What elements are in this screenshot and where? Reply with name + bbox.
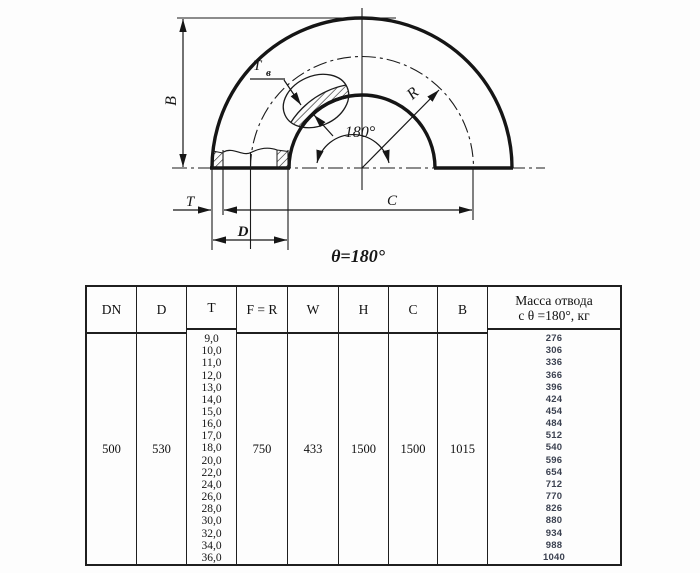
t-value: 10,0 bbox=[201, 345, 221, 357]
t-value: 13,0 bbox=[201, 382, 221, 394]
t-values-list: 9,010,011,012,013,014,015,016,017,018,02… bbox=[187, 330, 236, 564]
header-b: B bbox=[438, 287, 487, 334]
mass-value: 484 bbox=[546, 418, 562, 430]
label-b: B bbox=[163, 96, 180, 106]
wall-section-hatch-left bbox=[213, 151, 223, 167]
mass-value: 596 bbox=[546, 455, 562, 467]
mass-value: 454 bbox=[546, 406, 562, 418]
t-value: 15,0 bbox=[201, 406, 221, 418]
header-fr: F = R bbox=[237, 287, 287, 334]
value-b: 1015 bbox=[438, 334, 487, 564]
column-t: T 9,010,011,012,013,014,015,016,017,018,… bbox=[187, 287, 237, 564]
mass-value: 712 bbox=[546, 479, 562, 491]
header-h: H bbox=[339, 287, 388, 334]
mass-value: 540 bbox=[546, 442, 562, 454]
label-t: T bbox=[186, 194, 196, 210]
header-mass: Масса отвода с θ =180°, кг bbox=[488, 287, 620, 330]
dimension-table: DN 500 D 530 T 9,010,011,012,013,014,015… bbox=[85, 285, 622, 566]
column-fr: F = R 750 bbox=[237, 287, 288, 564]
label-r: R bbox=[403, 84, 423, 104]
header-c: C bbox=[389, 287, 437, 334]
value-d: 530 bbox=[137, 334, 186, 564]
mass-value: 366 bbox=[546, 370, 562, 382]
theta-caption: θ=180° bbox=[331, 246, 386, 266]
t-value: 30,0 bbox=[201, 515, 221, 527]
label-tb-subscript: в bbox=[266, 67, 271, 79]
header-dn: DN bbox=[87, 287, 136, 334]
column-w: W 433 bbox=[288, 287, 339, 564]
t-value: 17,0 bbox=[201, 430, 221, 442]
t-value: 24,0 bbox=[201, 479, 221, 491]
mass-value: 1040 bbox=[543, 552, 565, 564]
column-c: C 1500 bbox=[389, 287, 438, 564]
mass-value: 396 bbox=[546, 382, 562, 394]
mass-value: 336 bbox=[546, 357, 562, 369]
t-value: 14,0 bbox=[201, 394, 221, 406]
value-w: 433 bbox=[288, 334, 338, 564]
mass-value: 826 bbox=[546, 503, 562, 515]
mass-value: 512 bbox=[546, 430, 562, 442]
mass-value: 988 bbox=[546, 540, 562, 552]
mass-value: 770 bbox=[546, 491, 562, 503]
t-value: 36,0 bbox=[201, 552, 221, 564]
label-angle: 180° bbox=[345, 124, 376, 141]
column-dn: DN 500 bbox=[87, 287, 137, 564]
t-value: 18,0 bbox=[201, 442, 221, 454]
header-t: T bbox=[187, 287, 236, 330]
mass-value: 306 bbox=[546, 345, 562, 357]
mass-value: 880 bbox=[546, 515, 562, 527]
mass-value: 654 bbox=[546, 467, 562, 479]
value-dn: 500 bbox=[87, 334, 136, 564]
value-h: 1500 bbox=[339, 334, 388, 564]
value-fr: 750 bbox=[237, 334, 287, 564]
label-c: C bbox=[387, 193, 398, 209]
column-h: H 1500 bbox=[339, 287, 389, 564]
t-value: 11,0 bbox=[202, 357, 222, 369]
value-c: 1500 bbox=[389, 334, 437, 564]
tb-leader-arrow-inner bbox=[314, 115, 333, 136]
header-w: W bbox=[288, 287, 338, 334]
elbow-diagram: B T C D R 180° T в θ=180° bbox=[0, 0, 700, 285]
column-b: B 1015 bbox=[438, 287, 488, 564]
label-tb: T bbox=[253, 58, 263, 74]
mass-value: 934 bbox=[546, 528, 562, 540]
t-value: 12,0 bbox=[201, 370, 221, 382]
t-value: 20,0 bbox=[201, 455, 221, 467]
t-value: 28,0 bbox=[201, 503, 221, 515]
label-d: D bbox=[237, 224, 249, 240]
t-value: 32,0 bbox=[201, 528, 221, 540]
t-value: 22,0 bbox=[201, 467, 221, 479]
technical-drawing-page: B T C D R 180° T в θ=180° DN bbox=[0, 0, 700, 573]
mass-value: 276 bbox=[546, 333, 562, 345]
tb-leader-arrow-outer bbox=[284, 80, 301, 105]
column-d: D 530 bbox=[137, 287, 187, 564]
header-mass-line1: Масса отвода bbox=[515, 293, 593, 308]
t-value: 9,0 bbox=[204, 333, 218, 345]
t-value: 16,0 bbox=[201, 418, 221, 430]
header-d: D bbox=[137, 287, 186, 334]
column-mass: Масса отвода с θ =180°, кг 2763063363663… bbox=[488, 287, 620, 564]
mass-values-list: 2763063363663964244544845125405966547127… bbox=[488, 330, 620, 564]
t-value: 34,0 bbox=[201, 540, 221, 552]
t-value: 26,0 bbox=[201, 491, 221, 503]
header-mass-line2: с θ =180°, кг bbox=[518, 308, 589, 323]
mass-value: 424 bbox=[546, 394, 562, 406]
